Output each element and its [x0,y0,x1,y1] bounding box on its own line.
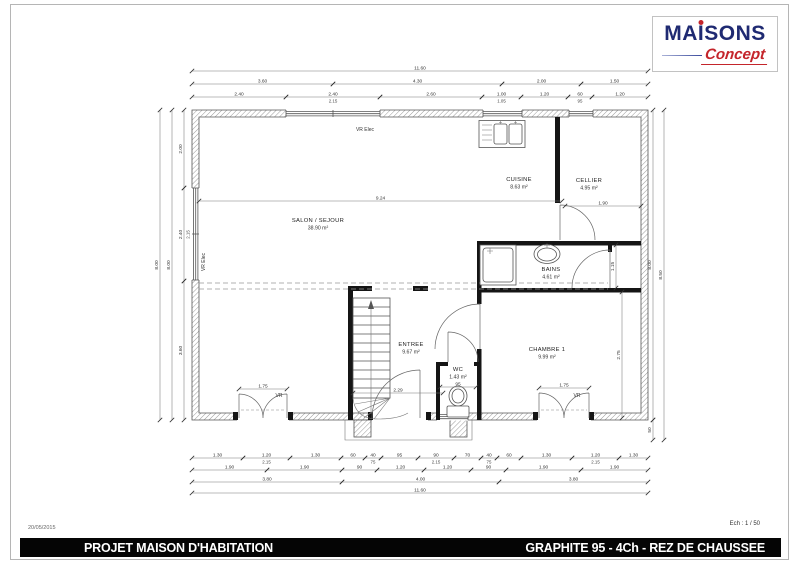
dim-label: 95 [397,452,403,458]
dim-label: 40 [486,452,492,458]
dim-label: 1.90 [598,200,608,206]
dim-label: 1.20 [615,91,625,97]
dim-label: 1.90 [539,464,549,470]
dim-label: 3.60 [178,346,184,356]
dim-label: 2.60 [426,91,436,97]
dim-label: 60 [506,452,512,458]
dim-label: 1.90 [300,464,310,470]
dim-label: 2.40 [328,91,338,97]
dim-sub-label: 1.05 [497,99,506,104]
dim-sub-label: 2.15 [185,230,190,239]
dim-label: 2.00 [178,144,184,154]
room-area: 1.43 m² [449,375,467,381]
dim-sub-label: 75 [371,460,376,465]
dim-label: 1.75 [258,383,268,389]
room-area: 9.99 m² [538,355,556,361]
dim-label: 90 [486,464,492,470]
exterior-doors [233,370,594,421]
dim-label: 1.15 [610,262,616,272]
dim-label: 2.75 [616,350,622,360]
dim-label: 8.00 [166,260,172,270]
toilet [447,386,469,417]
room-labels: SALON / SEJOUR38.90 m²CUISINE8.63 m²CELL… [292,177,602,381]
dim-label: 8.50 [658,270,664,280]
dim-label: 2.40 [234,91,244,97]
dim-label: 1.90 [610,464,620,470]
plan-annotations: VR ElecVR ElecVRVR [201,127,581,399]
dim-label: 1.00 [497,91,507,97]
dim-label: 1.75 [559,382,569,388]
dim-label: 8.00 [647,260,653,270]
room-name: CHAMBRE 1 [529,347,566,353]
dim-label: 4.00 [416,476,426,482]
dim-label: 11.60 [414,487,426,493]
room-area: 8.63 m² [510,185,528,191]
annotation-label: VR Elec [201,252,207,271]
dim-label: 3.60 [258,78,268,84]
dim-label: 60 [577,91,583,97]
dim-label: 4.30 [413,78,423,84]
dim-label: 1.20 [540,91,550,97]
washbasin [534,244,560,264]
dim-sub-label: 2.15 [329,99,338,104]
title-bar: PROJET MAISON D'HABITATION GRAPHITE 95 -… [20,538,781,557]
dim-label: 2.00 [537,78,547,84]
dim-label: 1.20 [262,452,272,458]
dim-label: 1.30 [311,452,321,458]
porch-pillar-right [450,420,467,437]
room-name: SALON / SEJOUR [292,218,344,224]
dim-sub-label: 2.15 [432,460,441,465]
annotation-label: VR [574,393,581,399]
plan-title: GRAPHITE 95 - 4Ch - REZ DE CHAUSSEE [525,541,765,555]
dim-label: 90 [357,464,363,470]
staircase [353,298,408,419]
dim-label: 40 [370,452,376,458]
shower [480,245,516,285]
dim-label: 50 [647,427,653,433]
dim-label: 9.24 [376,195,386,201]
room-area: 4.95 m² [580,186,598,192]
room-area: 38.90 m² [308,226,329,232]
dim-label: 3.80 [262,476,272,482]
windows [191,109,593,420]
drawing-date: 20/05/2015 [28,525,56,531]
interior-doors [435,205,610,362]
floor-plan-drawing: 11.603.604.302.001.502.402.402.152.601.0… [0,0,800,566]
room-name: WC [453,367,463,373]
dimension-lines: 11.603.604.302.001.502.402.402.152.601.0… [154,65,666,495]
dim-label: 2.40 [178,230,184,240]
room-name: ENTREE [398,342,423,348]
dim-sub-label: 75 [487,460,492,465]
porch-pillar-left [354,420,371,437]
dim-label: 60 [350,452,356,458]
room-area: 4.61 m² [542,275,560,281]
project-title: PROJET MAISON D'HABITATION [84,541,273,555]
entrance-porch [345,420,472,440]
dim-label: 1.30 [213,452,223,458]
dim-label: 1.30 [629,452,639,458]
dim-label: 90 [433,452,439,458]
kitchen-sink [479,121,525,148]
dim-label: 70 [465,452,471,458]
dim-label: 1.90 [225,464,235,470]
annotation-label: VR Elec [356,127,375,133]
dim-label: 95 [455,381,461,387]
dim-label: 11.60 [414,65,426,71]
dim-label: 3.80 [569,476,579,482]
dim-sub-label: 2.15 [591,460,600,465]
dim-label: 1.20 [443,464,453,470]
dim-sub-label: 2.15 [262,460,271,465]
dim-label: 2.29 [393,387,403,393]
dim-sub-label: 95 [578,99,583,104]
room-name: CUISINE [506,177,532,183]
room-name: CELLIER [576,178,602,184]
dim-label: 1.20 [396,464,406,470]
room-area: 9.67 m² [402,350,420,356]
dim-label: 1.20 [591,452,601,458]
dim-label: 8.00 [154,260,160,270]
dim-label: 1.50 [610,78,620,84]
room-name: BAINS [542,267,561,273]
annotation-label: VR [276,393,283,399]
dim-label: 1.30 [542,452,552,458]
drawing-scale: Ech : 1 / 50 [730,521,760,527]
